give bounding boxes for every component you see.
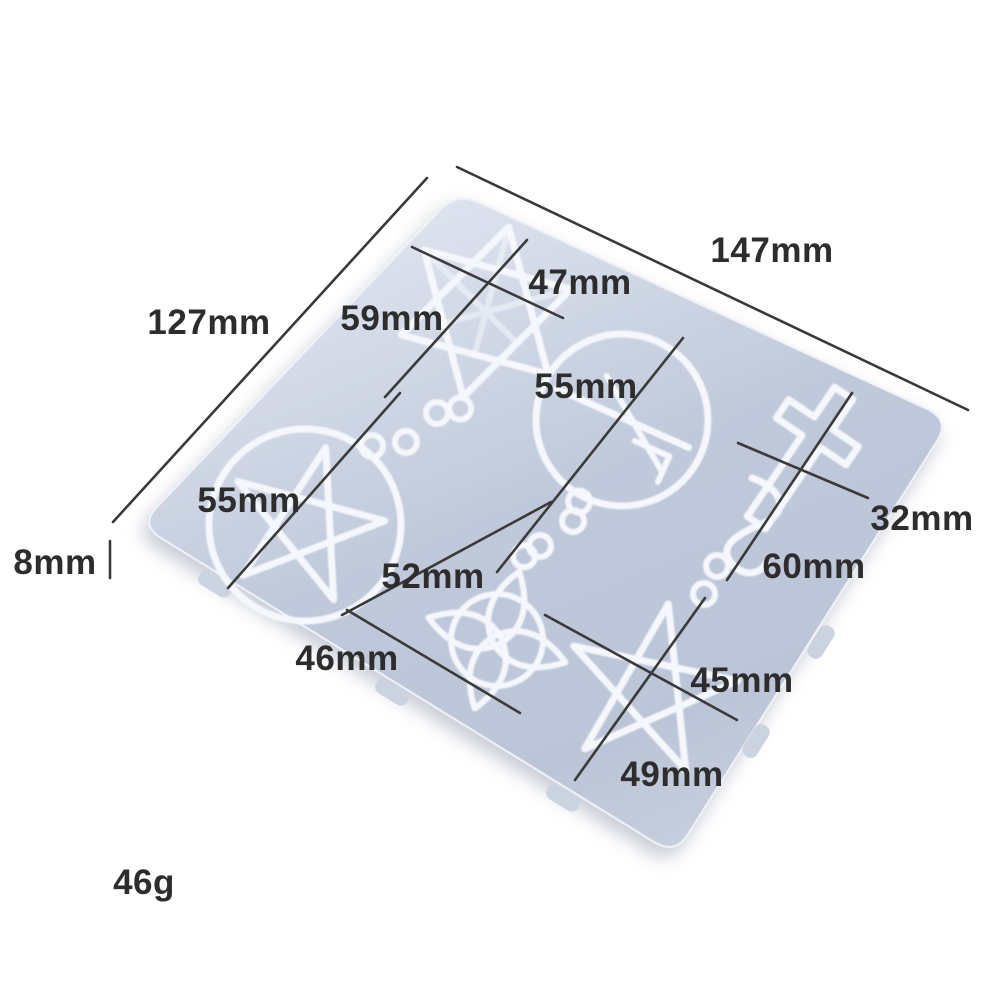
product-dimension-photo: 147mm 127mm 8mm 47mm 59mm 55mm 55mm 32mm…	[0, 0, 1002, 1002]
dim-label-knot-length: 52mm	[381, 557, 484, 596]
dim-label-overall-height: 127mm	[147, 303, 270, 342]
mold-diagram-canvas: 147mm 127mm 8mm 47mm 59mm 55mm 55mm 32mm…	[0, 0, 1002, 1002]
dim-label-hexagram-width: 47mm	[528, 263, 631, 302]
weight-label: 46g	[113, 863, 175, 902]
dim-label-star-length: 49mm	[620, 755, 723, 794]
dim-label-overall-width: 147mm	[710, 231, 833, 270]
dim-label-star-width: 45mm	[690, 661, 793, 700]
dim-label-hexagram-length: 59mm	[340, 299, 443, 338]
dim-label-cross-width: 32mm	[870, 499, 973, 538]
dim-label-thickness: 8mm	[13, 543, 96, 582]
dim-label-knot-width: 46mm	[295, 639, 398, 678]
dim-label-pentacle-diameter: 55mm	[197, 481, 300, 520]
dim-label-circle-diameter: 55mm	[534, 367, 637, 406]
dim-label-cross-length: 60mm	[762, 547, 865, 586]
